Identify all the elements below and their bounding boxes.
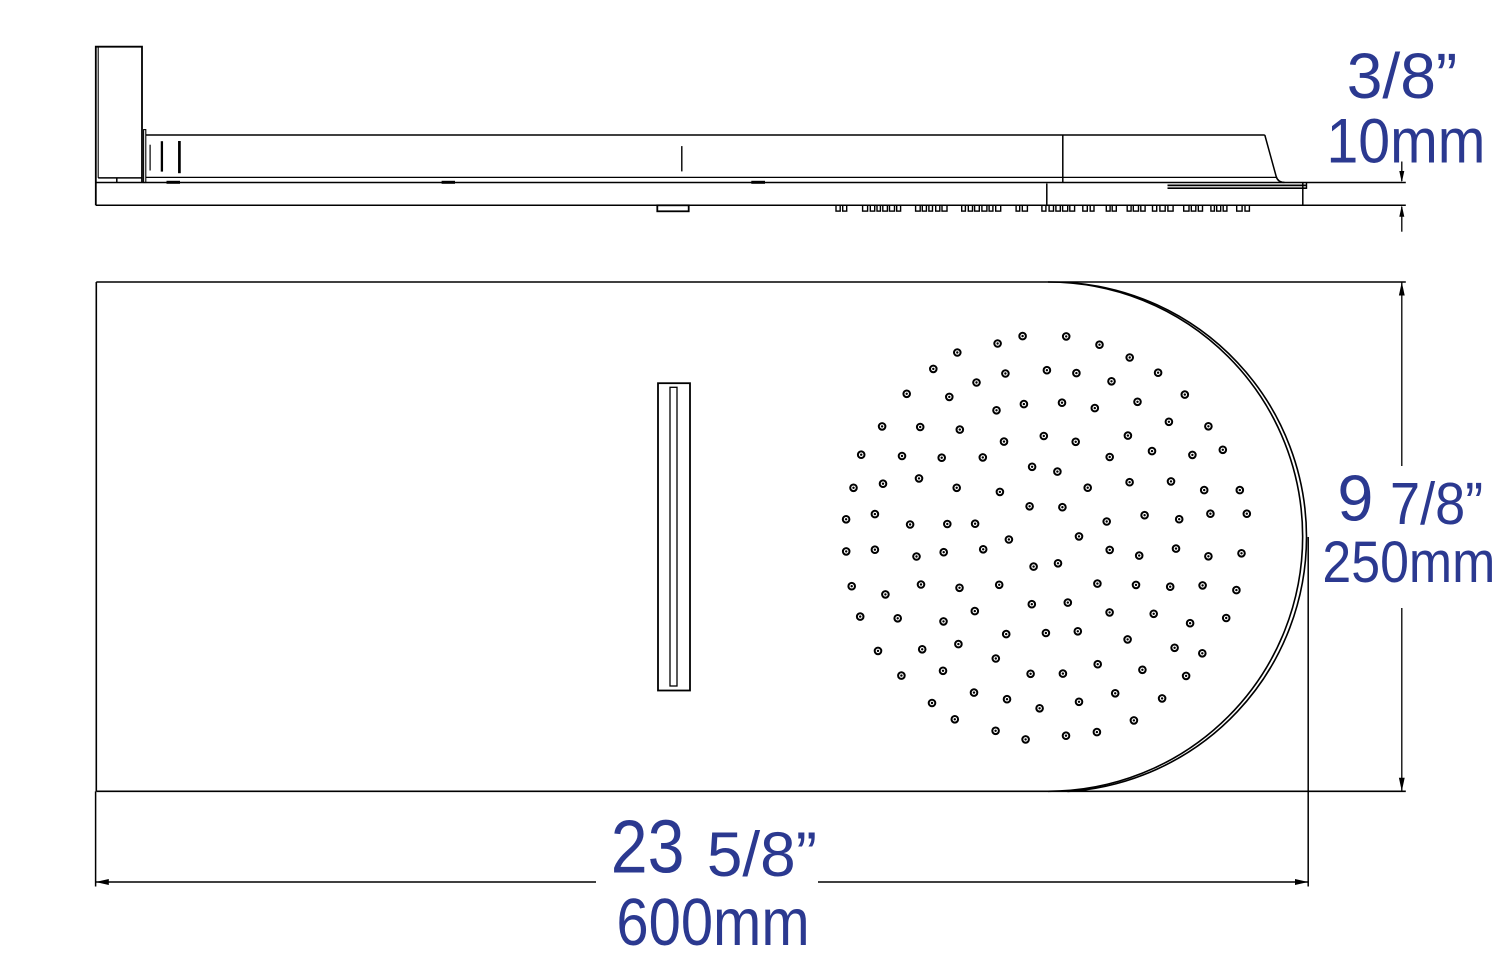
svg-text:23: 23 (611, 804, 685, 888)
svg-text:10mm: 10mm (1327, 106, 1486, 176)
svg-text:600mm: 600mm (616, 885, 809, 960)
svg-text:9: 9 (1337, 462, 1373, 535)
svg-text:3/8”: 3/8” (1347, 40, 1458, 112)
svg-text:7/8”: 7/8” (1390, 471, 1483, 537)
svg-text:250mm: 250mm (1322, 530, 1495, 595)
svg-text:5/8”: 5/8” (707, 820, 817, 890)
